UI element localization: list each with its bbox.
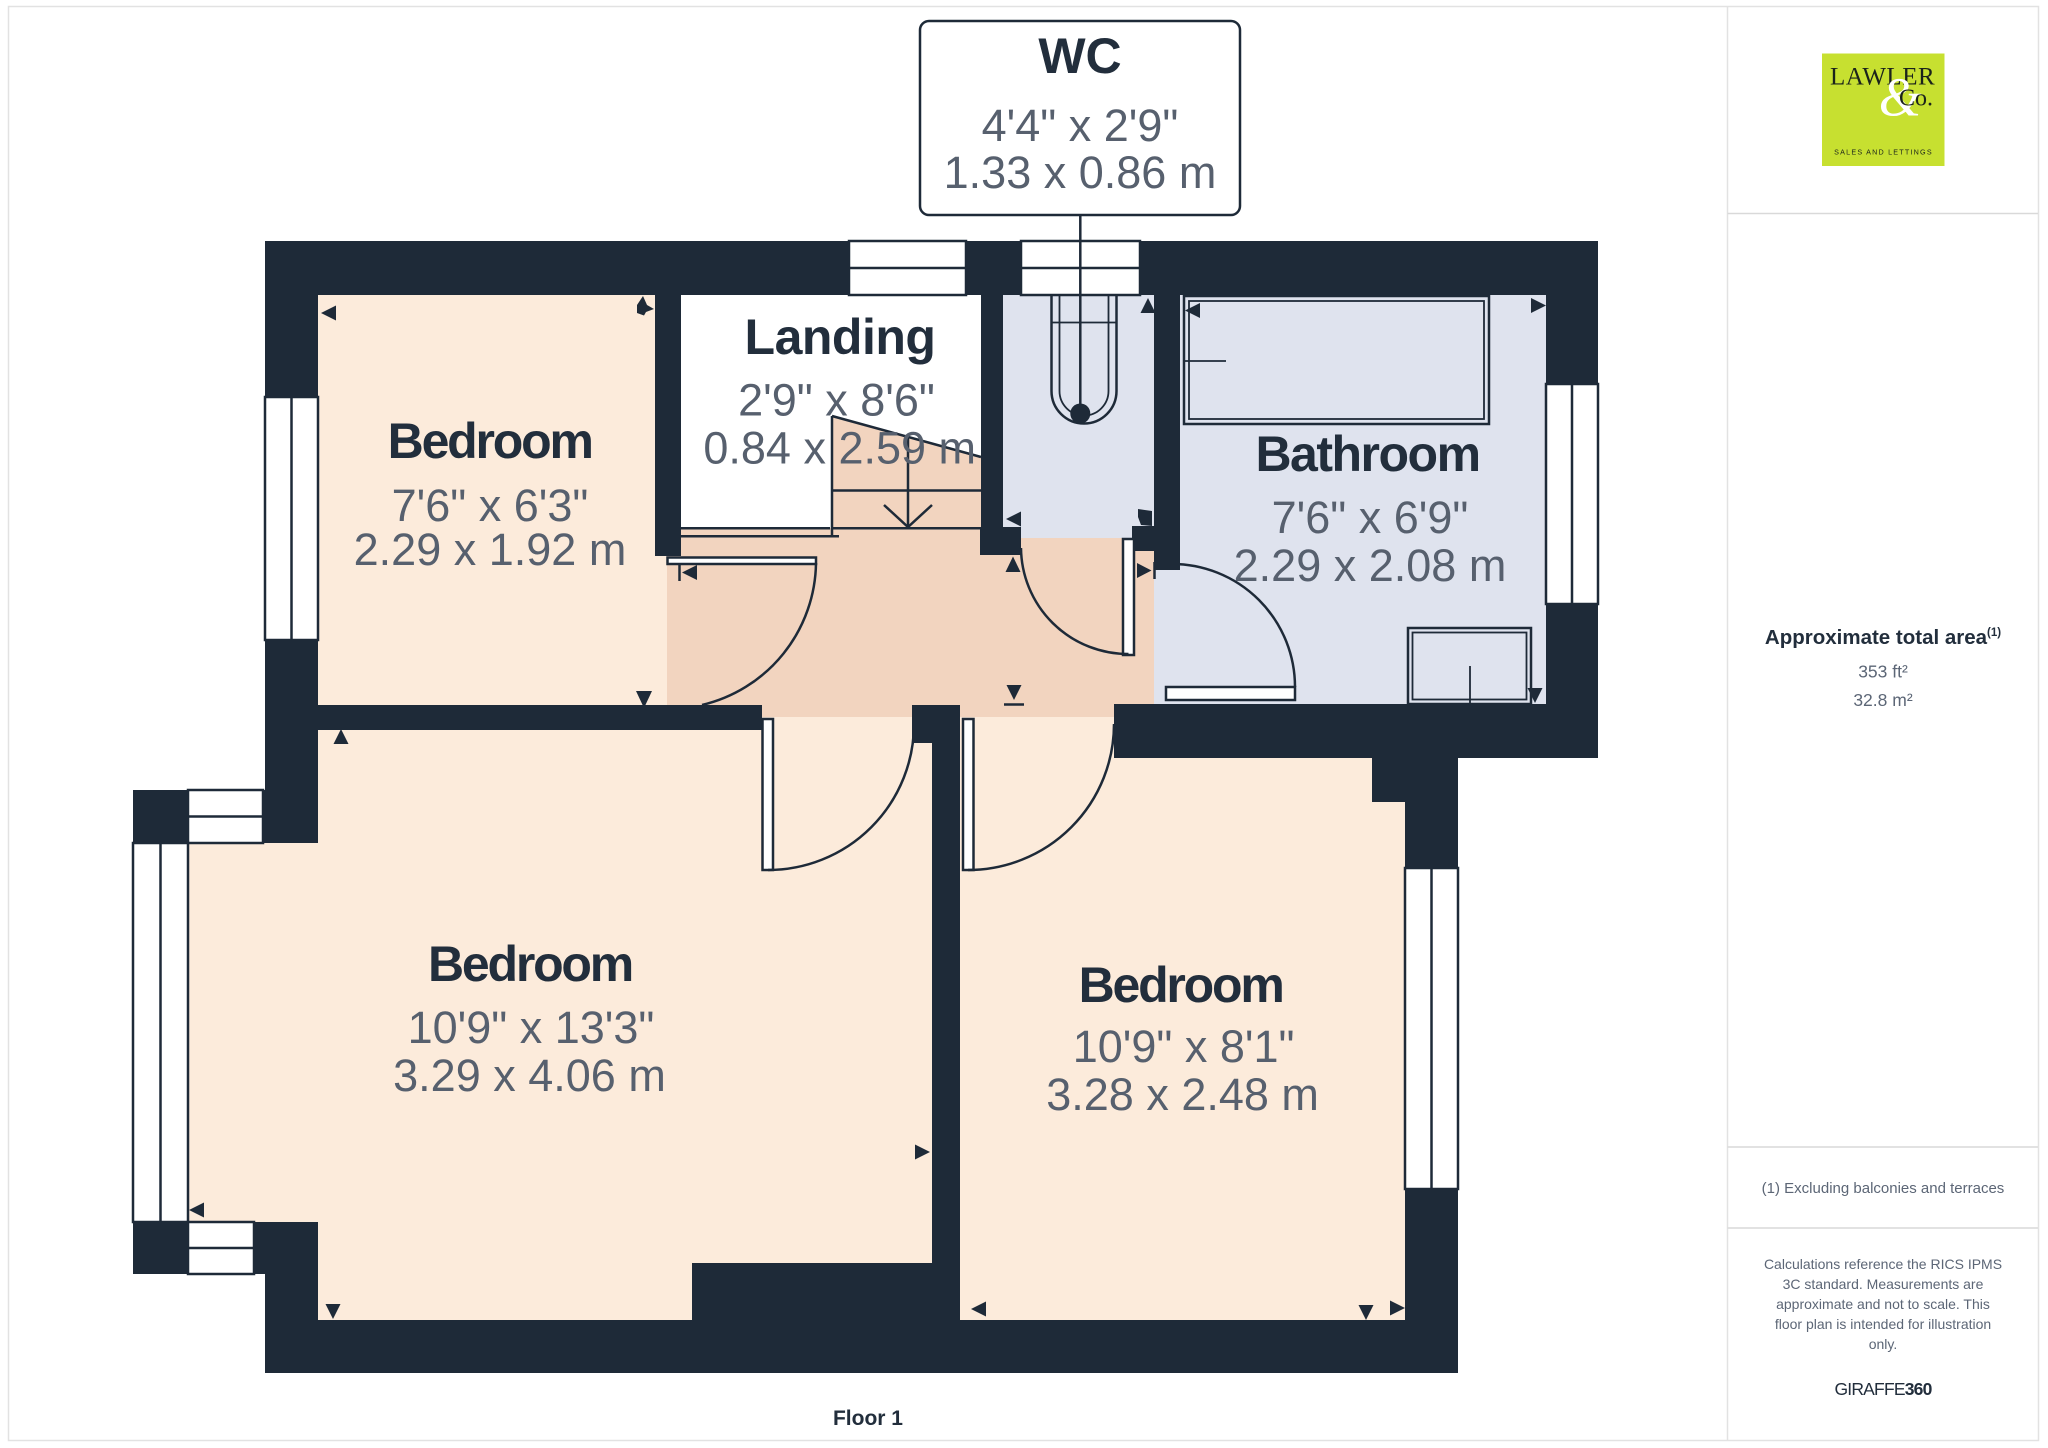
svg-text:Floor 1: Floor 1 — [833, 1407, 903, 1430]
svg-text:Co.: Co. — [1899, 86, 1933, 112]
svg-text:7'6" x 6'9": 7'6" x 6'9" — [1272, 492, 1469, 543]
svg-text:1.33 x 0.86 m: 1.33 x 0.86 m — [944, 147, 1217, 198]
svg-text:32.8 m²: 32.8 m² — [1853, 690, 1912, 710]
svg-text:4'4" x 2'9": 4'4" x 2'9" — [982, 100, 1179, 151]
svg-text:Bedroom: Bedroom — [428, 936, 632, 992]
svg-text:WC: WC — [1038, 28, 1121, 84]
svg-text:Approximate total area(1): Approximate total area(1) — [1765, 626, 2001, 649]
svg-text:Landing: Landing — [745, 309, 936, 365]
svg-text:3C standard. Measurements are: 3C standard. Measurements are — [1783, 1276, 1984, 1292]
svg-text:2.29 x 2.08 m: 2.29 x 2.08 m — [1234, 540, 1507, 591]
svg-text:floor plan is intended for ill: floor plan is intended for illustration — [1775, 1316, 1991, 1332]
svg-text:10'9" x 13'3": 10'9" x 13'3" — [408, 1002, 655, 1053]
svg-text:2.29 x 1.92 m: 2.29 x 1.92 m — [354, 524, 627, 575]
svg-text:10'9" x 8'1": 10'9" x 8'1" — [1073, 1021, 1295, 1072]
svg-text:2'9" x 8'6": 2'9" x 8'6" — [738, 375, 935, 426]
svg-text:SALES AND LETTINGS: SALES AND LETTINGS — [1834, 148, 1933, 157]
svg-text:Bathroom: Bathroom — [1255, 426, 1479, 482]
svg-text:GIRAFFE360: GIRAFFE360 — [1834, 1379, 1932, 1399]
svg-text:Bedroom: Bedroom — [1079, 957, 1283, 1013]
svg-text:only.: only. — [1869, 1336, 1898, 1352]
svg-text:3.28 x 2.48 m: 3.28 x 2.48 m — [1046, 1069, 1319, 1120]
svg-text:(1) Excluding balconies and te: (1) Excluding balconies and terraces — [1762, 1180, 2005, 1197]
svg-text:Bedroom: Bedroom — [388, 413, 592, 469]
svg-text:3.29 x 4.06 m: 3.29 x 4.06 m — [393, 1050, 666, 1101]
svg-text:353 ft²: 353 ft² — [1858, 662, 1908, 682]
svg-text:Calculations reference the RIC: Calculations reference the RICS IPMS — [1764, 1256, 2002, 1272]
svg-text:approximate and not to scale.: approximate and not to scale. This — [1776, 1296, 1990, 1312]
svg-text:0.84 x 2.59 m: 0.84 x 2.59 m — [703, 423, 976, 474]
